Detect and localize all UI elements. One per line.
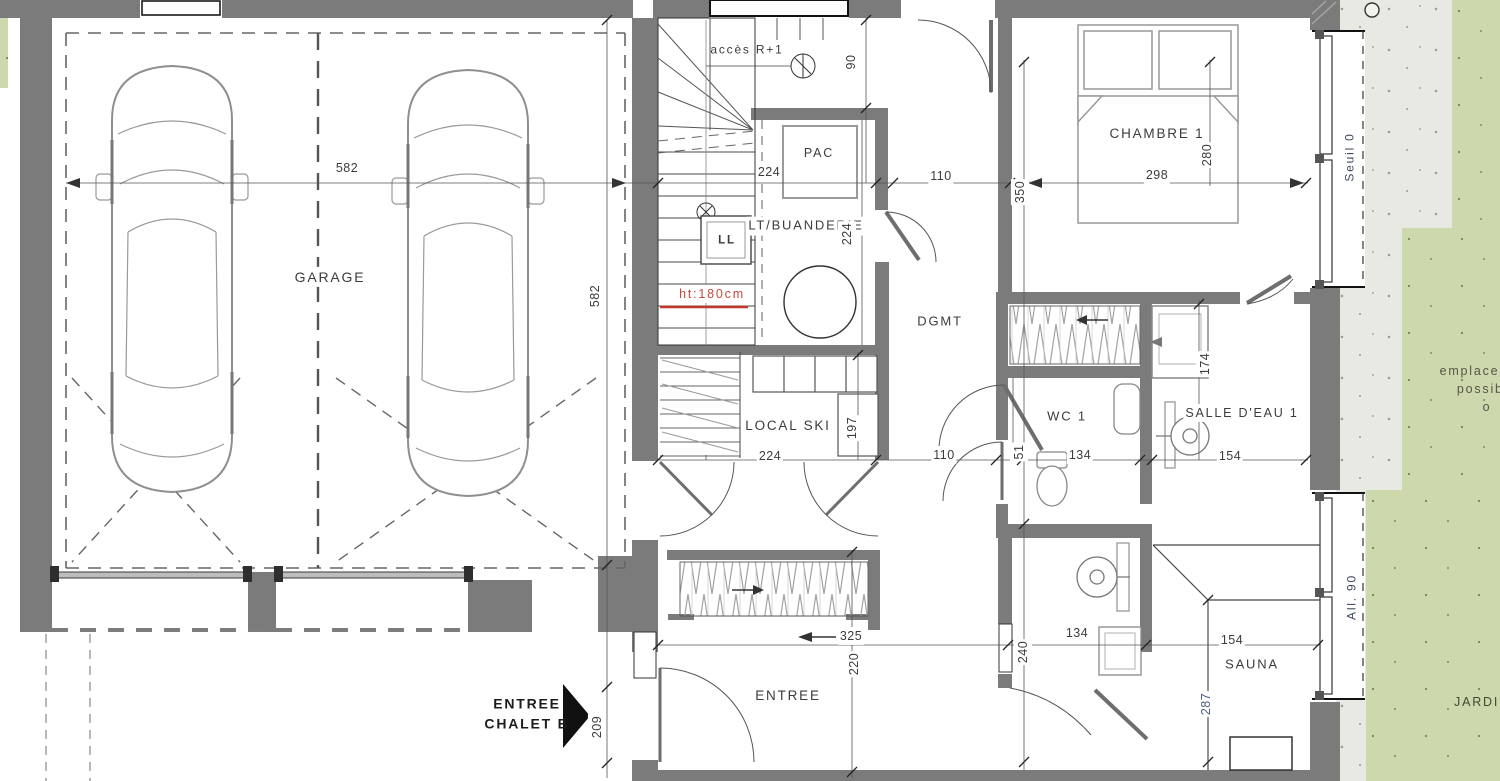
pac-unit xyxy=(783,126,857,198)
mid-window-bay xyxy=(710,0,848,16)
washing-machine xyxy=(701,216,751,264)
bath2-shower xyxy=(1077,543,1130,611)
car-2 xyxy=(392,70,544,496)
sde1-shower xyxy=(1156,402,1209,468)
entree-closet xyxy=(680,562,868,616)
entrance-arrow xyxy=(563,684,590,748)
bed xyxy=(1078,25,1238,223)
car-1 xyxy=(96,66,248,492)
water-heater xyxy=(784,266,856,338)
window-chambre-right xyxy=(1312,30,1365,289)
entree-side-door xyxy=(634,632,656,678)
ski-rack xyxy=(753,356,878,456)
plan-drawing xyxy=(0,0,1500,781)
garage-top-window xyxy=(142,1,220,15)
window-sauna-right xyxy=(1312,492,1365,700)
wc-washbasin xyxy=(1114,384,1140,434)
wc-closet xyxy=(1010,306,1140,364)
sauna-stove xyxy=(1230,737,1292,770)
floor-plan: GARAGEaccès R+1PACLT/BUANDERIELLht:180cm… xyxy=(0,0,1500,781)
survey-marker xyxy=(1365,3,1379,17)
bath2-washbasin xyxy=(1099,627,1141,675)
